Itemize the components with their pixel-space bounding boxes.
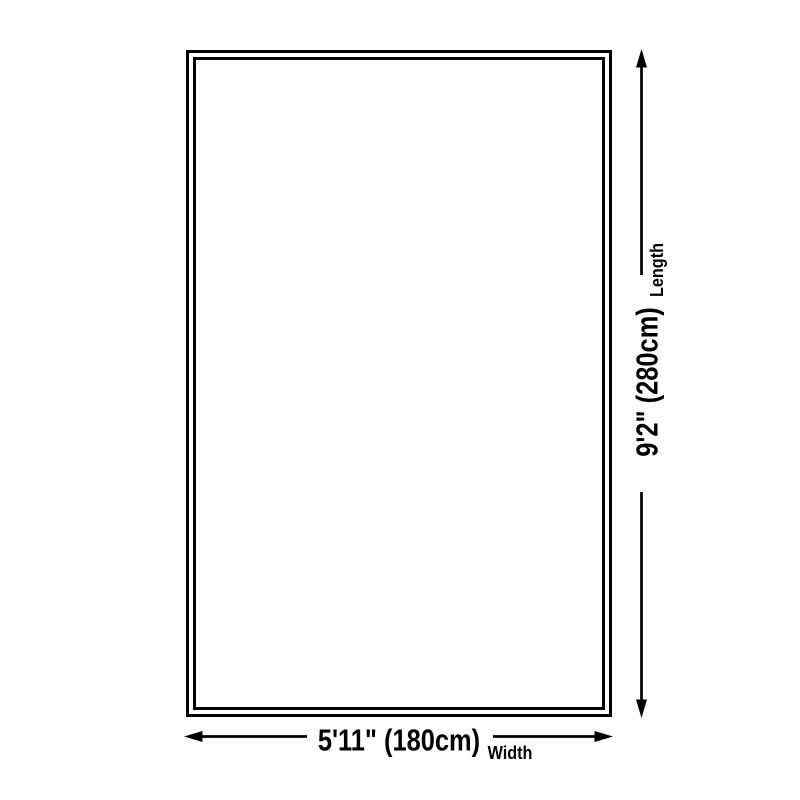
length-dimension-value: 9'2" (280cm) [632,307,663,457]
width-axis-label: Width [488,744,533,762]
width-dimension-value: 5'11" (180cm) [318,725,480,756]
right-arrowhead-icon [595,731,614,742]
left-arrowhead-icon [184,731,203,742]
dimension-arrows [0,0,800,800]
up-arrowhead-icon [636,49,647,68]
down-arrowhead-icon [636,700,647,719]
length-axis-label: Length [648,243,666,297]
rug-size-diagram: 9'2" (280cm) Length 5'11" (180cm) Width [0,0,800,800]
